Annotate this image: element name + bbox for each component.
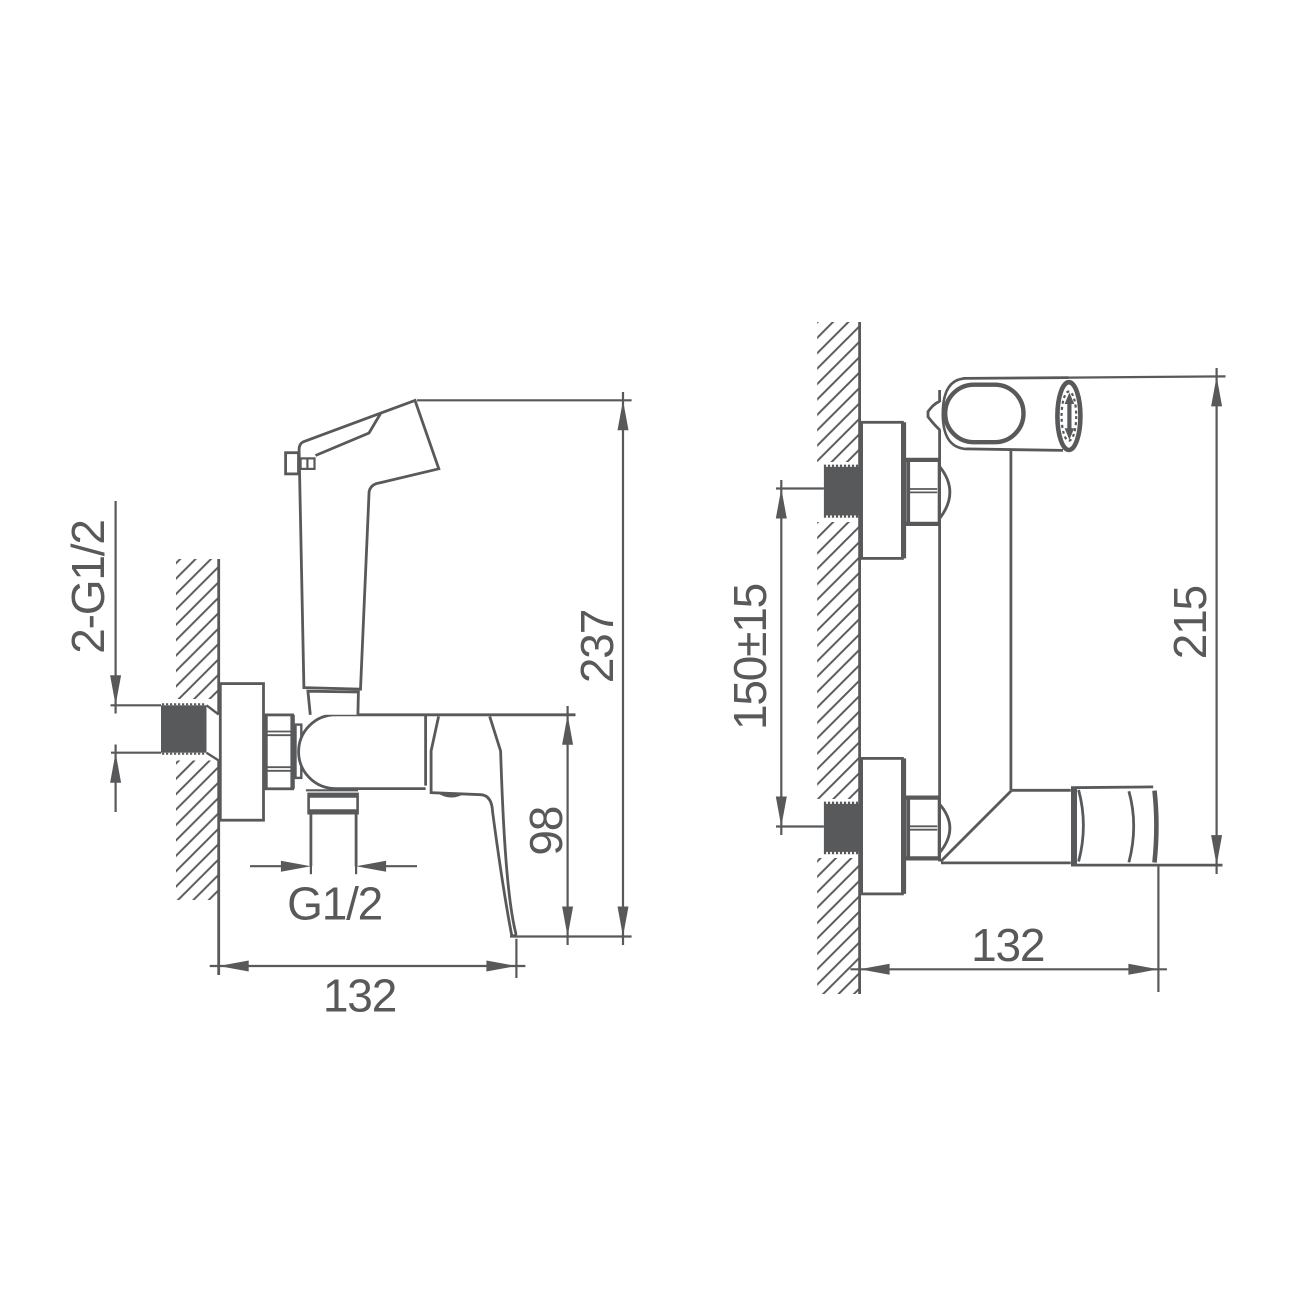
svg-text:2-G1/2: 2-G1/2: [62, 520, 114, 653]
svg-text:98: 98: [520, 807, 572, 856]
svg-text:237: 237: [571, 610, 623, 683]
svg-text:215: 215: [1164, 586, 1216, 659]
svg-text:132: 132: [971, 919, 1044, 971]
svg-text:150±15: 150±15: [724, 584, 776, 730]
svg-text:G1/2: G1/2: [287, 878, 382, 930]
svg-text:132: 132: [323, 970, 396, 1022]
